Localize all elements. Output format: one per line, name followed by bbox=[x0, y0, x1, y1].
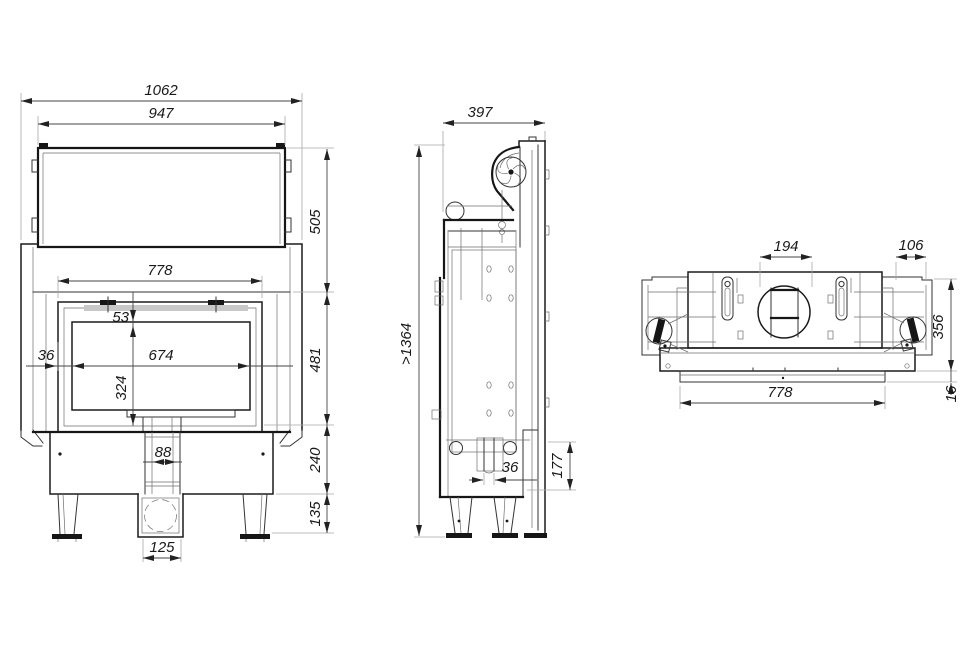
side-body bbox=[492, 137, 549, 537]
flue-outlet bbox=[758, 286, 810, 338]
plinth bbox=[50, 432, 273, 494]
dim-label-air-inlet-width: 125 bbox=[149, 539, 175, 556]
top-shield bbox=[642, 277, 932, 355]
dim-label-leg-height: 135 bbox=[307, 501, 324, 527]
dim-label-overall-width: 1062 bbox=[144, 82, 178, 99]
dim-label-door-width: 778 bbox=[147, 262, 173, 279]
dim-label-door-height: 481 bbox=[307, 347, 324, 372]
foot-right bbox=[240, 534, 270, 539]
air-inlet-box bbox=[138, 494, 183, 537]
dim-label-side-panel-width: 106 bbox=[898, 237, 924, 254]
technical-drawing-page: 1062 947 778 505 481 240 135 53 36 674 3… bbox=[0, 0, 970, 647]
vent-slot-left bbox=[722, 277, 733, 320]
dim-label-min-total-height: >1364 bbox=[398, 323, 415, 365]
dim-label-depth: 397 bbox=[467, 104, 493, 121]
dim-label-rear-clearance: 177 bbox=[549, 453, 566, 479]
dim-label-glass-width: 674 bbox=[148, 347, 173, 364]
top-view: 194 106 356 16 778 bbox=[642, 237, 960, 409]
pulley-right bbox=[884, 313, 926, 352]
guide-roller bbox=[446, 202, 464, 220]
dim-label-flue-width: 194 bbox=[773, 238, 798, 255]
extension-lines bbox=[21, 93, 334, 562]
vent-slot-right bbox=[836, 277, 847, 320]
pulley-left bbox=[646, 314, 688, 352]
firebox-shell bbox=[440, 147, 538, 497]
counterweight-cable bbox=[499, 190, 506, 243]
dim-label-hood-width: 947 bbox=[148, 105, 174, 122]
dim-label-body-depth: 356 bbox=[930, 314, 947, 340]
dim-label-glass-side-offset: 36 bbox=[38, 347, 55, 364]
door-lift-housing bbox=[492, 147, 519, 210]
side-view: 397 >1364 36 177 bbox=[398, 104, 576, 538]
dim-label-hood-height: 505 bbox=[307, 209, 324, 235]
guide-rail bbox=[432, 202, 516, 497]
air-duct bbox=[145, 432, 180, 494]
dim-label-plinth-height: 240 bbox=[307, 447, 324, 474]
dim-label-front-width: 778 bbox=[767, 384, 793, 401]
dim-label-slot-depth: 36 bbox=[502, 459, 519, 476]
front-lip bbox=[680, 371, 885, 382]
dim-label-duct-width: 88 bbox=[155, 444, 172, 461]
dim-label-glass-height: 324 bbox=[113, 375, 130, 400]
bottom-slot bbox=[477, 438, 503, 471]
pulley-wheel bbox=[496, 157, 526, 187]
technical-drawing: 1062 947 778 505 481 240 135 53 36 674 3… bbox=[0, 0, 970, 647]
hood bbox=[32, 143, 291, 247]
dim-label-lip-depth: 16 bbox=[943, 385, 960, 402]
foot-left bbox=[52, 534, 82, 539]
dimension-lines bbox=[21, 101, 327, 558]
front-view: 1062 947 778 505 481 240 135 53 36 674 3… bbox=[21, 82, 334, 562]
dim-label-glass-top-offset: 53 bbox=[112, 309, 129, 326]
front-bar bbox=[660, 348, 915, 382]
legs bbox=[52, 494, 270, 542]
